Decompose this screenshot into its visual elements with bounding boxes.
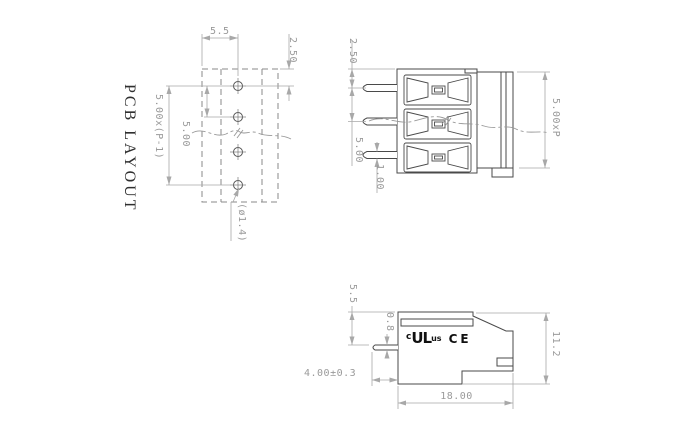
solder-pins: [363, 85, 397, 159]
terminal-cell: [404, 143, 471, 172]
solder-pin: [363, 152, 397, 159]
side-slot: [497, 358, 513, 366]
ul-mark-icon: UL: [411, 331, 431, 346]
ce-mark-icon: CE: [449, 332, 472, 346]
technical-drawing: PCB LAYOUT 5.5 2.50 5.00x(P-1) 5.00 (ø1.…: [0, 0, 680, 440]
terminal-cell: [404, 75, 471, 105]
mounting-hole: [230, 109, 246, 125]
mounting-hole: [230, 78, 246, 94]
dim-body-length: 5.00xP: [550, 98, 561, 137]
dim-top-to-pin: 5.5: [347, 284, 358, 304]
solder-pin: [363, 85, 397, 92]
dim-total-pitch: 5.00x(P-1): [153, 94, 164, 159]
dim-pin-offset: 2.50: [347, 38, 358, 64]
pcb-layout-title: PCB LAYOUT: [120, 84, 138, 213]
terminal-cell: [404, 109, 471, 139]
certification-marks: c UL us CE: [406, 331, 472, 346]
solder-pin: [373, 345, 398, 350]
top-slot: [401, 319, 473, 326]
dim-pitch: 5.00: [180, 121, 191, 147]
dim-pin-pitch: 5.00: [353, 137, 364, 163]
mounting-holes: [230, 78, 246, 193]
dim-pin-thickness: 0.8: [384, 312, 395, 332]
dim-pin-width: 1.00: [374, 164, 385, 190]
dim-body-depth: 18.00: [430, 391, 483, 402]
dim-hole-diameter: (ø1.4): [236, 203, 247, 242]
dim-first-pad: 2.50: [287, 37, 298, 63]
ul-us-suffix: us: [431, 334, 441, 343]
dim-body-height: 11.2: [550, 331, 561, 357]
mounting-hole: [230, 144, 246, 160]
dim-pad-col-offset: 5.5: [210, 26, 230, 37]
dim-pin-length: 4.00±0.3: [304, 368, 356, 379]
